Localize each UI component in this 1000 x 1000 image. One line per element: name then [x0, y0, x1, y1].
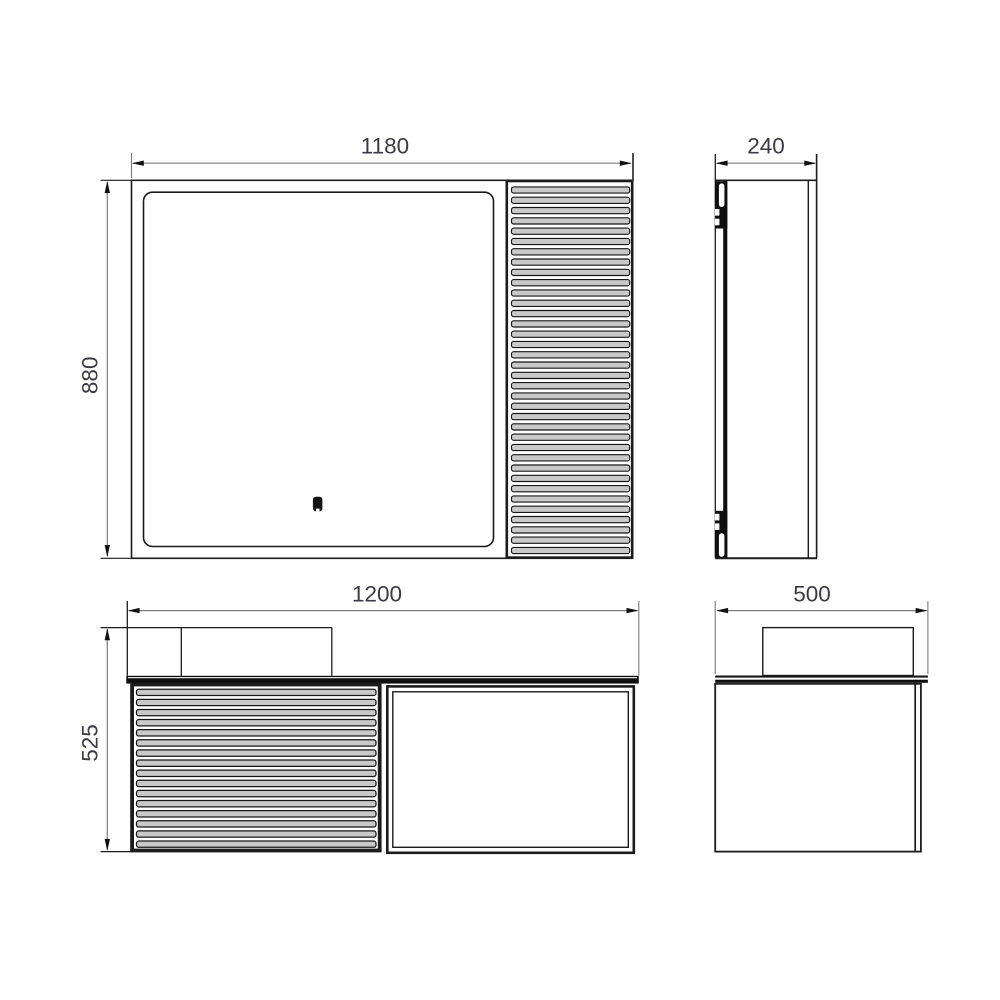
svg-text:500: 500	[793, 582, 831, 607]
svg-text:525: 525	[78, 724, 103, 762]
svg-text:1180: 1180	[361, 134, 409, 159]
svg-text:240: 240	[747, 134, 785, 159]
svg-text:880: 880	[78, 357, 103, 395]
svg-text:1200: 1200	[352, 582, 402, 607]
